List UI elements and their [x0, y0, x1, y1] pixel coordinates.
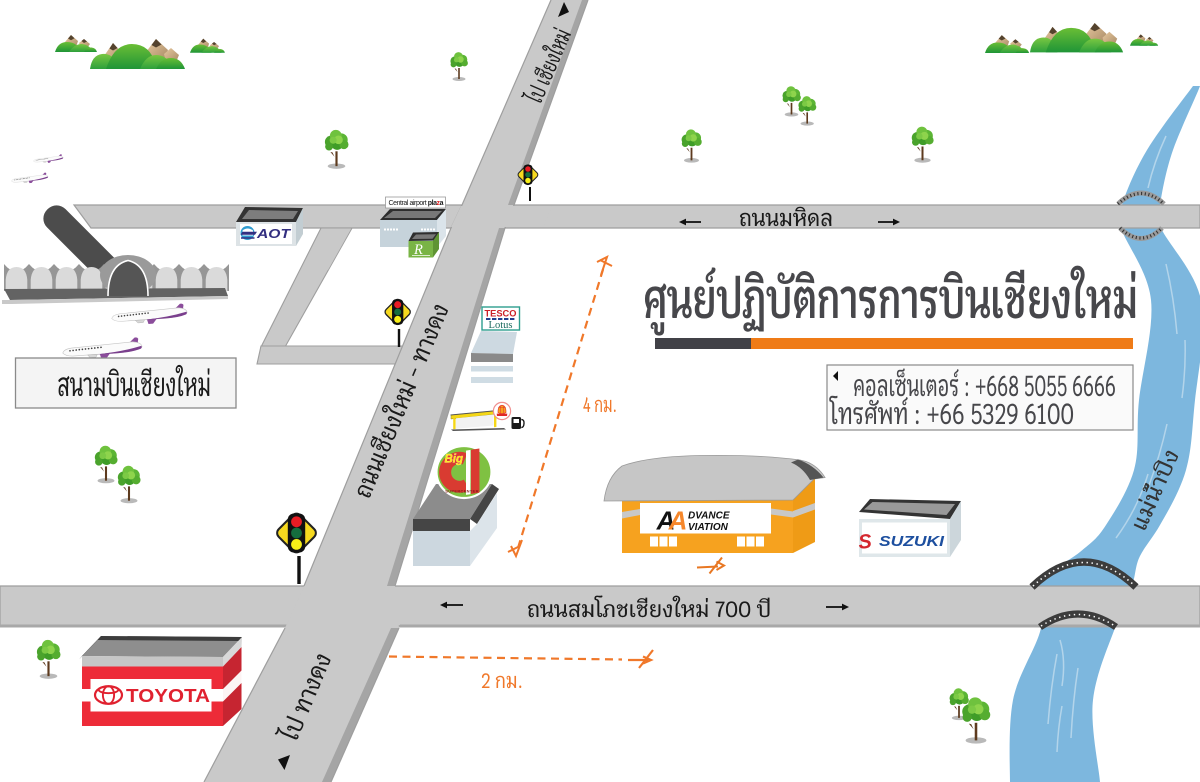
- svg-text:Big: Big: [445, 454, 464, 466]
- svg-text:DVANCE: DVANCE: [688, 511, 730, 522]
- svg-text:A: A: [668, 506, 688, 536]
- svg-text:SUZUKI: SUZUKI: [879, 534, 945, 550]
- svg-text:VIATION: VIATION: [688, 522, 729, 533]
- svg-text:SUPERCENTER: SUPERCENTER: [445, 489, 479, 494]
- svg-text:AOT: AOT: [256, 226, 291, 241]
- svg-text:Lotus: Lotus: [489, 320, 513, 331]
- svg-text:Central airport plaza: Central airport plaza: [389, 200, 444, 207]
- svg-text:TESCO: TESCO: [485, 309, 517, 319]
- svg-text:TOYOTA: TOYOTA: [126, 685, 210, 706]
